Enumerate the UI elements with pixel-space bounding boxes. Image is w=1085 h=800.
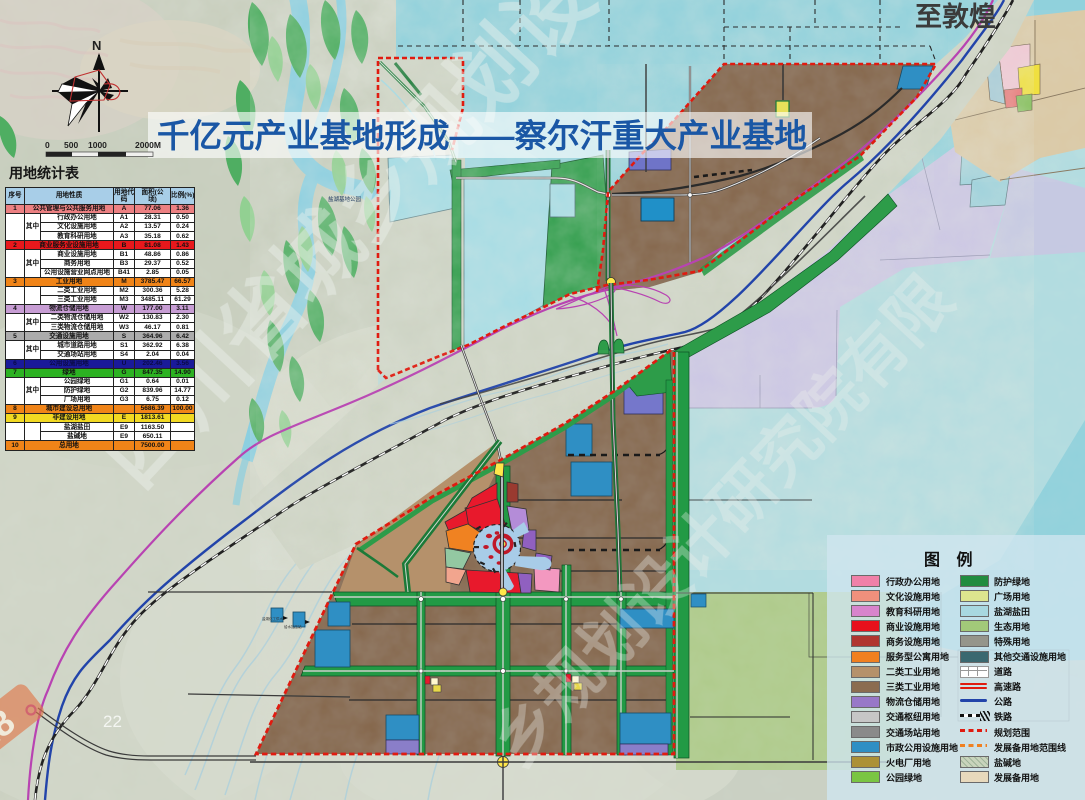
svg-text:千亿元产业基地形成——察尔汗重大产业基地: 千亿元产业基地形成——察尔汗重大产业基地 [157, 118, 807, 154]
svg-text:1000: 1000 [88, 140, 107, 150]
svg-text:500: 500 [64, 140, 78, 150]
svg-text:N: N [92, 38, 101, 53]
svg-text:2000M: 2000M [135, 140, 161, 150]
svg-text:0: 0 [45, 140, 50, 150]
svg-text:盐湖化工供水: 盐湖化工供水 [262, 616, 283, 621]
svg-text:22: 22 [103, 712, 122, 731]
svg-text:给水加压站: 给水加压站 [284, 624, 302, 629]
svg-text:至敦煌: 至敦煌 [915, 1, 996, 32]
svg-text:盐湖基地公园: 盐湖基地公园 [328, 195, 362, 203]
